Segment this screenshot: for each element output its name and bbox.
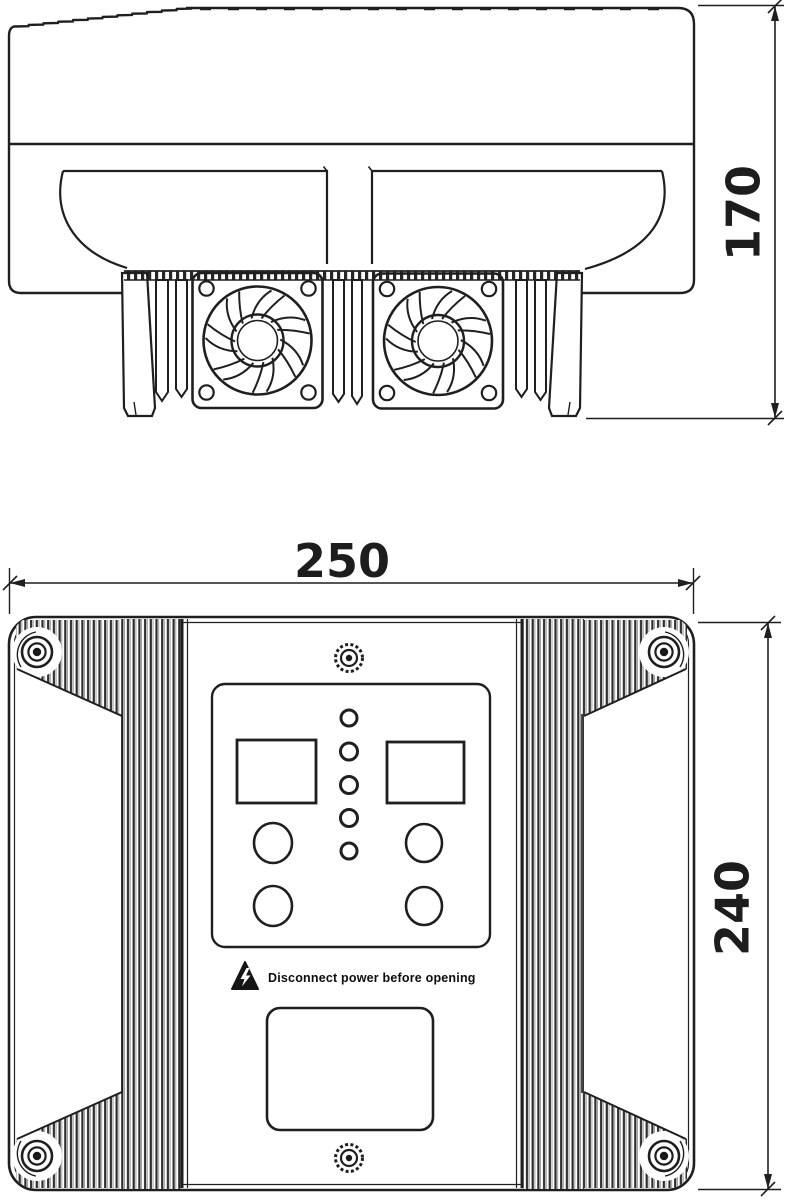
display-window-right <box>387 742 464 803</box>
screw-bottom-center <box>336 1145 363 1172</box>
display-window-left <box>237 740 316 803</box>
panel-button-bottom-left[interactable] <box>254 886 292 926</box>
led-indicator <box>341 710 357 726</box>
panel-button-bottom-right[interactable] <box>406 887 442 925</box>
side-right-foot <box>549 273 582 416</box>
led-indicator <box>341 777 358 794</box>
warning-label: Disconnect power before opening <box>232 962 476 989</box>
side-wall-edges <box>17 669 686 1139</box>
screw-top-center <box>336 645 363 672</box>
led-indicator <box>341 843 357 859</box>
dimension-170-label: 170 <box>717 165 771 261</box>
dimension-250: 250 <box>3 534 700 614</box>
side-left-foot <box>122 273 155 416</box>
cooling-fan-right <box>373 274 503 409</box>
cooling-fan-left <box>193 273 323 408</box>
dimension-250-label: 250 <box>294 534 390 588</box>
heatsink-fin-band-right <box>522 619 584 1189</box>
heatsink-fin-band-left <box>120 619 182 1189</box>
drawing-canvas: 170 250 <box>0 0 786 1200</box>
side-left-recess <box>60 167 327 269</box>
warning-text: Disconnect power before opening <box>268 971 476 985</box>
side-body-outline <box>9 7 694 293</box>
led-indicator <box>341 743 358 760</box>
panel-button-top-left[interactable] <box>254 823 292 863</box>
led-indicator-column <box>341 710 358 859</box>
led-indicator <box>341 810 358 827</box>
panel-button-top-right[interactable] <box>406 824 442 862</box>
side-view: 170 <box>9 0 784 425</box>
dimension-240: 240 <box>698 616 781 1196</box>
center-plate-edges <box>182 619 522 1188</box>
technical-drawing-sheet: 170 250 <box>0 0 786 1200</box>
terminal-cover <box>267 1008 433 1130</box>
side-right-recess <box>369 167 665 270</box>
dimension-170: 170 <box>586 0 784 425</box>
warning-triangle-icon <box>232 962 258 989</box>
dimension-240-label: 240 <box>706 860 760 956</box>
control-panel <box>212 684 490 947</box>
front-view: 250 <box>3 534 781 1196</box>
